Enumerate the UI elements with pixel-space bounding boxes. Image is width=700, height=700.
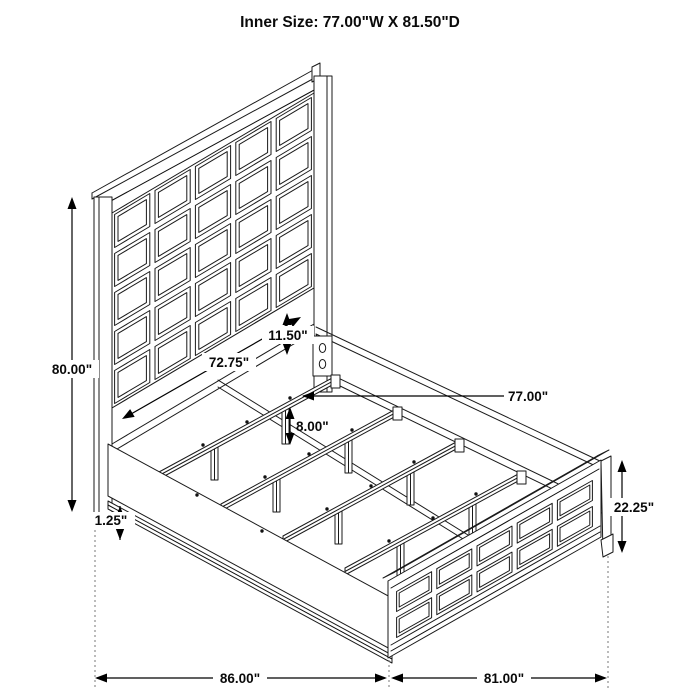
dim-rail-to-panel: 11.50" [268,328,307,343]
dim-headboard-inner-width: 72.75" [209,355,249,370]
bracket-hole [319,360,325,369]
dim-slat-leg-height: 8.00" [296,419,329,434]
dim-footboard-height: 22.25" [614,500,654,515]
dim-slat-length: 77.00" [508,389,548,404]
rail-bracket [313,336,332,376]
dim-rail-trim-height: 1.25" [95,513,128,528]
footboard [383,450,613,658]
diagram-canvas: 80.00" 11.50" 72.75" 77.00" 8.00" 1.25" … [0,0,700,700]
dim-footboard-width: 81.00" [484,671,524,686]
page-title: Inner Size: 77.00"W X 81.50"D [240,14,460,31]
bracket-hole [319,344,325,353]
dim-overall-height: 80.00" [52,362,92,377]
dim-overall-depth: 86.00" [220,671,260,686]
bed-dimension-diagram: 80.00" 11.50" 72.75" 77.00" 8.00" 1.25" … [0,0,700,700]
front-side-rail [108,444,392,663]
